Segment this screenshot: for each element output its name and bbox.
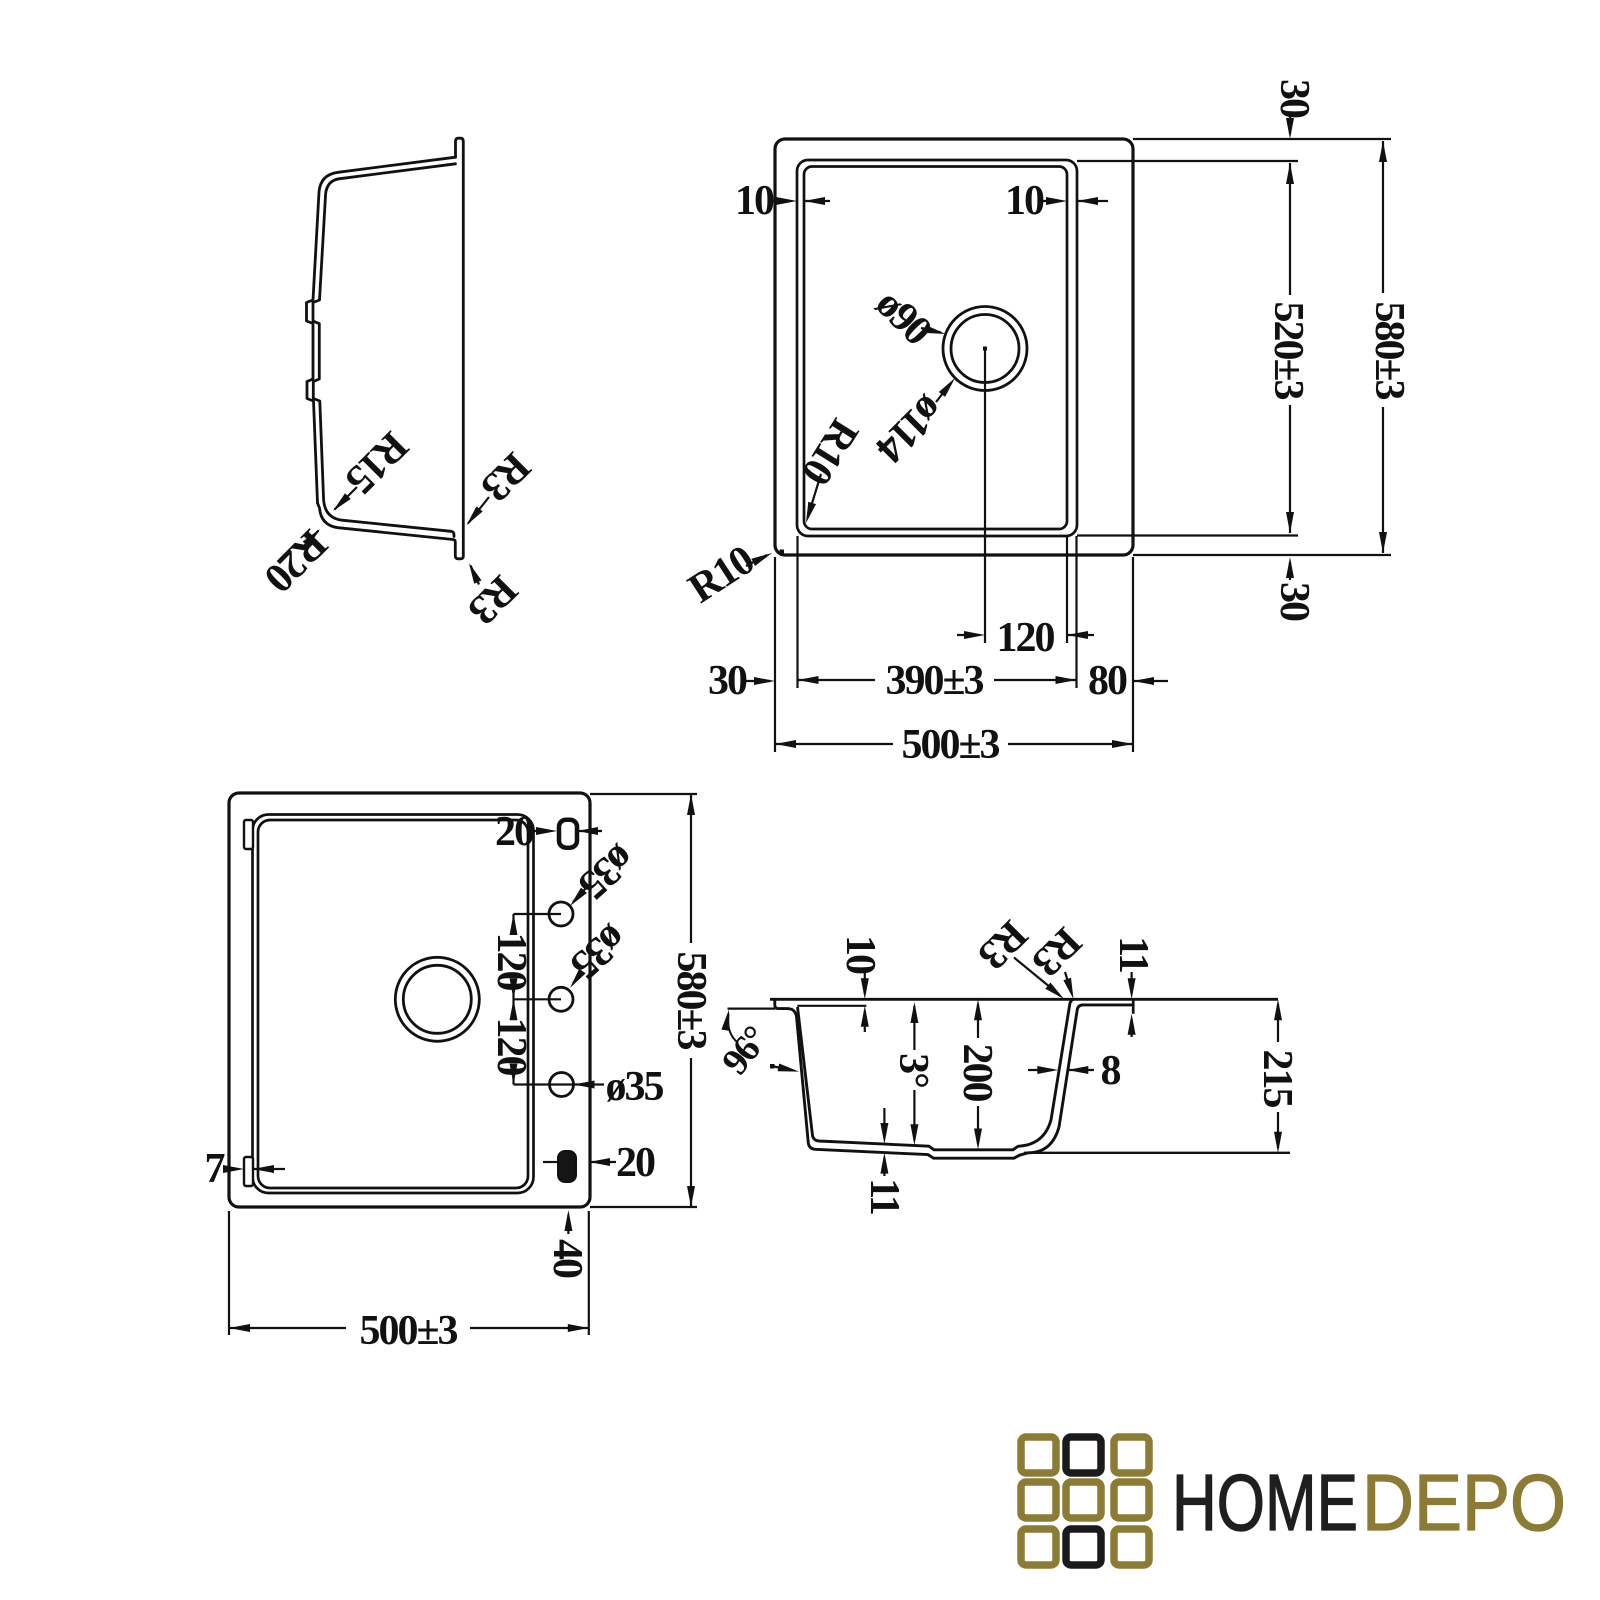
svg-text:500±3: 500±3 bbox=[359, 1308, 457, 1354]
svg-text:520±3: 520±3 bbox=[1265, 301, 1311, 399]
svg-text:10: 10 bbox=[837, 935, 883, 974]
svg-text:11: 11 bbox=[861, 1178, 907, 1214]
svg-text:215: 215 bbox=[1254, 1050, 1300, 1108]
svg-text:200: 200 bbox=[954, 1044, 1000, 1102]
svg-text:8: 8 bbox=[1101, 1048, 1121, 1094]
svg-text:30: 30 bbox=[1271, 79, 1317, 118]
svg-text:390±3: 390±3 bbox=[885, 658, 983, 704]
svg-text:80: 80 bbox=[1088, 658, 1127, 704]
svg-text:11: 11 bbox=[1110, 936, 1156, 972]
svg-text:10: 10 bbox=[1005, 178, 1044, 224]
svg-text:120: 120 bbox=[997, 615, 1055, 661]
svg-text:40: 40 bbox=[544, 1239, 590, 1278]
svg-text:3°: 3° bbox=[890, 1053, 936, 1087]
svg-text:30: 30 bbox=[1271, 582, 1317, 621]
svg-text:DEPO: DEPO bbox=[1362, 1458, 1566, 1547]
svg-text:20: 20 bbox=[616, 1140, 655, 1186]
svg-text:580±3: 580±3 bbox=[1366, 301, 1412, 399]
svg-text:30: 30 bbox=[708, 658, 747, 704]
svg-text:500±3: 500±3 bbox=[901, 722, 999, 768]
svg-text:7: 7 bbox=[205, 1146, 225, 1192]
svg-text:580±3: 580±3 bbox=[668, 951, 714, 1049]
svg-text:20: 20 bbox=[495, 809, 534, 855]
svg-text:HOME: HOME bbox=[1172, 1458, 1358, 1547]
svg-text:ø35: ø35 bbox=[606, 1064, 664, 1110]
